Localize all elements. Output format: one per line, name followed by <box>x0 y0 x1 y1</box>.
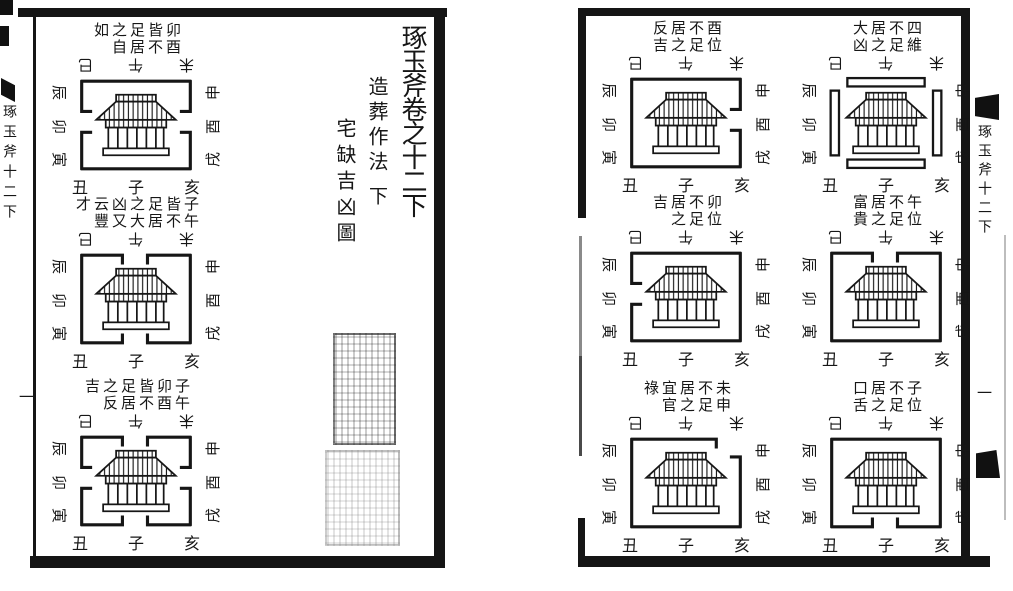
house-drawing <box>640 451 732 515</box>
branch-label-left: 辰 <box>799 257 820 272</box>
diagram-caption: 四維不足居之大凶 <box>851 20 921 56</box>
branch-label-top: 巳 <box>828 58 843 74</box>
branch-labels-top: 巳午未 <box>828 418 944 434</box>
branch-label-top: 巳 <box>828 418 843 434</box>
caption-column: 居之 <box>669 20 685 54</box>
branch-label-bottom: 亥 <box>934 532 950 556</box>
branch-label-bottom: 亥 <box>734 346 750 370</box>
branch-label-left: 寅 <box>799 510 820 525</box>
caption-column: 居之 <box>869 194 885 228</box>
left-folio-mark: 一 <box>19 386 34 407</box>
house-diagram: 卯酉皆不足居之自如 巳午未 辰卯寅 申酉戌 丑子亥 <box>52 22 220 196</box>
branch-label-top: 未 <box>729 232 744 248</box>
branch-labels-bottom: 丑子亥 <box>822 346 950 370</box>
scanned-book-spread: { "colors": { "ink": "#161616", "paper":… <box>0 0 1013 591</box>
branch-label-top: 午 <box>878 58 893 74</box>
right-folio-mark: 一 <box>977 382 992 403</box>
caption-column: 子午 <box>182 196 198 230</box>
branch-labels-bottom: 丑子亥 <box>622 346 750 370</box>
caption-column: 居之 <box>669 194 685 228</box>
branch-label-bottom: 丑 <box>72 174 88 198</box>
caption-column: 口舌 <box>851 380 867 414</box>
diagram-caption: 子午皆不足居之大凶又云豐才 <box>74 196 198 232</box>
branch-labels-left: 辰卯寅 <box>52 256 67 344</box>
caption-column: 皆不 <box>146 22 162 56</box>
caption-column: 不足 <box>887 194 903 228</box>
branch-labels-bottom: 丑子亥 <box>822 532 950 556</box>
compass-diagram: 巳午未 辰卯寅 申酉戌 丑子亥 <box>602 418 770 554</box>
house-diagram: 子午皆不足居之大凶又云豐才 巳午未 辰卯寅 申酉戌 丑子亥 <box>52 196 220 370</box>
branch-label-bottom: 子 <box>678 172 694 196</box>
caption-column: 卯位 <box>705 194 721 228</box>
branch-label-bottom: 亥 <box>184 348 200 372</box>
branch-labels-left: 辰卯寅 <box>602 440 617 528</box>
branch-label-right: 酉 <box>952 476 973 491</box>
branch-label-right: 申 <box>752 257 773 272</box>
branch-label-right: 申 <box>952 257 973 272</box>
branch-label-bottom: 丑 <box>822 532 838 556</box>
branch-label-top: 未 <box>729 58 744 74</box>
branch-label-right: 酉 <box>752 476 773 491</box>
diagram-caption: 卯酉皆不足居之自如 <box>92 22 180 58</box>
branch-label-bottom: 亥 <box>734 532 750 556</box>
compass-diagram: 巳午未 辰卯寅 申酉戌 丑子亥 <box>802 58 970 194</box>
branch-label-top: 午 <box>678 418 693 434</box>
caption-column: 凶又 <box>110 196 126 230</box>
branch-label-top: 未 <box>179 416 194 432</box>
branch-label-left: 寅 <box>49 152 70 167</box>
branch-label-bottom: 子 <box>878 346 894 370</box>
fishtail-mark <box>1 78 15 102</box>
caption-column: 之反 <box>101 378 117 412</box>
house-drawing <box>90 267 182 331</box>
branch-labels-bottom: 丑子亥 <box>72 530 200 554</box>
branch-label-bottom: 子 <box>678 346 694 370</box>
branch-label-top: 午 <box>678 58 693 74</box>
branch-label-left: 卯 <box>49 118 70 133</box>
branch-label-top: 午 <box>878 418 893 434</box>
house-diagram: 卯位不足居之吉 巳午未 辰卯寅 申酉戌 丑子亥 <box>602 194 770 368</box>
branch-labels-top: 巳午未 <box>78 60 194 76</box>
page-edge-line <box>1004 235 1006 520</box>
branch-labels-top: 巳午未 <box>628 232 744 248</box>
branch-labels-bottom: 丑子亥 <box>622 532 750 556</box>
branch-label-right: 戌 <box>202 508 223 523</box>
caption-column: 不足 <box>687 20 703 54</box>
caption-column: 反吉 <box>651 20 667 54</box>
branch-label-right: 戌 <box>202 152 223 167</box>
branch-labels-left: 辰卯寅 <box>602 254 617 342</box>
branch-label-right: 申 <box>752 83 773 98</box>
branch-label-bottom: 丑 <box>822 346 838 370</box>
branch-label-bottom: 亥 <box>734 172 750 196</box>
branch-label-right: 酉 <box>752 116 773 131</box>
branch-label-left: 寅 <box>799 324 820 339</box>
seal-stamp <box>333 333 396 445</box>
branch-label-right: 戌 <box>952 510 973 525</box>
branch-label-left: 卯 <box>49 292 70 307</box>
branch-label-right: 酉 <box>952 116 973 131</box>
caption-column: 居之 <box>678 380 694 414</box>
diagram-caption: 子午卯酉皆不足居之反吉 <box>83 378 189 414</box>
branch-label-bottom: 亥 <box>934 346 950 370</box>
branch-label-right: 戌 <box>952 324 973 339</box>
subtitle-suffix: 下 <box>366 186 387 210</box>
branch-labels-right: 申酉戌 <box>955 254 970 342</box>
branch-label-right: 戌 <box>752 150 773 165</box>
house-drawing <box>840 265 932 329</box>
caption-column: 不足 <box>696 380 712 414</box>
branch-label-right: 申 <box>202 259 223 274</box>
diagram-caption: 午位不足居之富貴 <box>851 194 921 230</box>
compass-diagram: 巳午未 辰卯寅 申酉戌 丑子亥 <box>602 232 770 368</box>
branch-labels-right: 申酉戌 <box>205 256 220 344</box>
branch-label-left: 寅 <box>599 324 620 339</box>
branch-label-top: 巳 <box>78 60 93 76</box>
branch-label-top: 巳 <box>78 234 93 250</box>
branch-label-left: 寅 <box>49 326 70 341</box>
caption-column: 宜官 <box>660 380 676 414</box>
caption-column: 吉 <box>83 378 99 395</box>
branch-label-left: 辰 <box>49 441 70 456</box>
subtitle-text: 造葬作法 <box>365 76 387 176</box>
right-spine-label: 琢玉斧十二下 <box>973 124 993 238</box>
branch-labels-left: 辰卯寅 <box>802 254 817 342</box>
caption-column: 子位 <box>905 380 921 414</box>
branch-label-right: 酉 <box>952 290 973 305</box>
compass-diagram: 巳午未 辰卯寅 申酉戌 丑子亥 <box>52 416 220 552</box>
edge-ink-blob <box>0 0 13 15</box>
branch-labels-top: 巳午未 <box>78 234 194 250</box>
house-diagram: 四維不足居之大凶 巳午未 辰卯寅 申酉戌 丑子亥 <box>802 20 970 194</box>
branch-labels-bottom: 丑子亥 <box>72 348 200 372</box>
branch-label-top: 未 <box>179 60 194 76</box>
house-drawing <box>90 93 182 157</box>
house-diagram: 酉位不足居之反吉 巳午未 辰卯寅 申酉戌 丑子亥 <box>602 20 770 194</box>
compass-diagram: 巳午未 辰卯寅 申酉戌 丑子亥 <box>802 232 970 368</box>
caption-column: 祿 <box>642 380 658 397</box>
branch-label-left: 卯 <box>799 476 820 491</box>
caption-column: 居之 <box>869 20 885 54</box>
branch-labels-right: 申酉戌 <box>755 254 770 342</box>
diagram-caption: 卯位不足居之吉 <box>651 194 721 230</box>
branch-label-bottom: 丑 <box>72 530 88 554</box>
house-drawing <box>640 91 732 155</box>
branch-labels-right: 申酉戌 <box>205 438 220 526</box>
branch-label-top: 未 <box>179 234 194 250</box>
section-title: 宅缺吉凶圖 <box>330 118 359 248</box>
branch-label-left: 寅 <box>599 150 620 165</box>
branch-label-left: 寅 <box>49 508 70 523</box>
branch-label-top: 午 <box>128 234 143 250</box>
branch-label-right: 申 <box>952 443 973 458</box>
branch-label-left: 辰 <box>599 83 620 98</box>
branch-label-top: 未 <box>729 418 744 434</box>
branch-label-top: 未 <box>929 418 944 434</box>
branch-label-bottom: 丑 <box>72 348 88 372</box>
caption-column: 居之 <box>869 380 885 414</box>
branch-labels-bottom: 丑子亥 <box>622 172 750 196</box>
caption-column: 酉位 <box>705 20 721 54</box>
diagram-caption: 子位不足居之口舌 <box>851 380 921 416</box>
branch-label-right: 酉 <box>202 118 223 133</box>
branch-label-left: 卯 <box>799 290 820 305</box>
fishtail-mark <box>975 94 999 120</box>
house-diagram: 子位不足居之口舌 巳午未 辰卯寅 申酉戌 丑子亥 <box>802 380 970 554</box>
branch-label-left: 寅 <box>799 150 820 165</box>
branch-label-right: 酉 <box>202 292 223 307</box>
compass-diagram: 巳午未 辰卯寅 申酉戌 丑子亥 <box>52 60 220 196</box>
branch-label-top: 未 <box>929 232 944 248</box>
branch-labels-top: 巳午未 <box>628 418 744 434</box>
caption-column: 才 <box>74 196 90 213</box>
house-diagram: 午位不足居之富貴 巳午未 辰卯寅 申酉戌 丑子亥 <box>802 194 970 368</box>
branch-labels-right: 申酉戌 <box>955 80 970 168</box>
branch-label-bottom: 子 <box>128 174 144 198</box>
caption-column: 之大 <box>128 196 144 230</box>
caption-column: 不足 <box>887 380 903 414</box>
branch-label-top: 巳 <box>628 232 643 248</box>
caption-column: 未申 <box>714 380 730 414</box>
branch-label-top: 巳 <box>628 58 643 74</box>
branch-label-top: 未 <box>929 58 944 74</box>
branch-label-left: 卯 <box>599 290 620 305</box>
branch-label-right: 酉 <box>202 474 223 489</box>
edge-ink-blob <box>0 26 9 46</box>
branch-labels-left: 辰卯寅 <box>802 440 817 528</box>
branch-label-top: 巳 <box>628 418 643 434</box>
branch-label-right: 申 <box>202 85 223 100</box>
branch-labels-top: 巳午未 <box>628 58 744 74</box>
subtitle: 造葬作法下 <box>362 76 391 210</box>
branch-labels-left: 辰卯寅 <box>802 80 817 168</box>
branch-labels-top: 巳午未 <box>78 416 194 432</box>
branch-label-right: 酉 <box>752 290 773 305</box>
caption-column: 皆不 <box>164 196 180 230</box>
branch-label-bottom: 亥 <box>184 530 200 554</box>
branch-labels-right: 申酉戌 <box>755 440 770 528</box>
branch-label-left: 卯 <box>599 116 620 131</box>
caption-column: 如 <box>92 22 108 39</box>
branch-labels-right: 申酉戌 <box>955 440 970 528</box>
left-spine-label: 琢玉斧十二下 <box>0 104 18 224</box>
branch-label-left: 辰 <box>49 85 70 100</box>
caption-column: 足居 <box>146 196 162 230</box>
branch-labels-bottom: 丑子亥 <box>72 174 200 198</box>
branch-label-bottom: 丑 <box>622 346 638 370</box>
caption-column: 云豐 <box>92 196 108 230</box>
branch-label-bottom: 亥 <box>184 174 200 198</box>
branch-label-left: 辰 <box>799 443 820 458</box>
caption-column: 大凶 <box>851 20 867 54</box>
branch-labels-right: 申酉戌 <box>205 82 220 170</box>
branch-labels-bottom: 丑子亥 <box>822 172 950 196</box>
branch-labels-left: 辰卯寅 <box>52 82 67 170</box>
left-page-diagram-column: 卯酉皆不足居之自如 巳午未 辰卯寅 申酉戌 丑子亥 子午皆不足居之大凶又云豐才 … <box>52 22 220 567</box>
left-page-border-top <box>18 8 447 17</box>
branch-label-right: 申 <box>202 441 223 456</box>
caption-column: 富貴 <box>851 194 867 228</box>
branch-label-bottom: 子 <box>678 532 694 556</box>
branch-label-top: 巳 <box>78 416 93 432</box>
caption-column: 午位 <box>905 194 921 228</box>
branch-label-bottom: 丑 <box>622 532 638 556</box>
compass-diagram: 巳午未 辰卯寅 申酉戌 丑子亥 <box>52 234 220 370</box>
caption-column: 不足 <box>887 20 903 54</box>
branch-label-bottom: 亥 <box>934 172 950 196</box>
branch-label-right: 戌 <box>752 510 773 525</box>
branch-label-left: 辰 <box>799 83 820 98</box>
branch-labels-right: 申酉戌 <box>755 80 770 168</box>
caption-column: 四維 <box>905 20 921 54</box>
caption-column: 卯酉 <box>164 22 180 56</box>
left-page-border-left <box>33 10 36 566</box>
house-diagram: 未申不足居之宜官祿 巳午未 辰卯寅 申酉戌 丑子亥 <box>602 380 770 554</box>
branch-label-top: 午 <box>128 60 143 76</box>
branch-label-right: 申 <box>752 443 773 458</box>
branch-labels-top: 巳午未 <box>828 58 944 74</box>
caption-column: 皆不 <box>137 378 153 412</box>
seal-stamp <box>325 450 400 546</box>
house-drawing <box>640 265 732 329</box>
caption-column: 足居 <box>119 378 135 412</box>
caption-column: 子午 <box>173 378 189 412</box>
branch-label-bottom: 子 <box>128 530 144 554</box>
house-drawing <box>840 91 932 155</box>
branch-label-left: 辰 <box>599 257 620 272</box>
diagram-caption: 未申不足居之宜官祿 <box>642 380 730 416</box>
fishtail-mark <box>976 450 1000 478</box>
branch-labels-top: 巳午未 <box>828 232 944 248</box>
branch-label-top: 午 <box>128 416 143 432</box>
compass-diagram: 巳午未 辰卯寅 申酉戌 丑子亥 <box>602 58 770 194</box>
house-diagram: 子午卯酉皆不足居之反吉 巳午未 辰卯寅 申酉戌 丑子亥 <box>52 378 220 552</box>
branch-label-top: 巳 <box>828 232 843 248</box>
branch-label-left: 辰 <box>599 443 620 458</box>
branch-label-top: 午 <box>878 232 893 248</box>
branch-labels-left: 辰卯寅 <box>52 438 67 526</box>
branch-label-right: 戌 <box>202 326 223 341</box>
branch-label-left: 辰 <box>49 259 70 274</box>
branch-label-right: 戌 <box>752 324 773 339</box>
compass-diagram: 巳午未 辰卯寅 申酉戌 丑子亥 <box>802 418 970 554</box>
branch-label-top: 午 <box>678 232 693 248</box>
branch-label-left: 寅 <box>599 510 620 525</box>
branch-label-bottom: 丑 <box>622 172 638 196</box>
house-drawing <box>840 451 932 515</box>
branch-label-bottom: 子 <box>128 348 144 372</box>
caption-column: 不足 <box>687 194 703 228</box>
branch-label-left: 卯 <box>599 476 620 491</box>
branch-label-bottom: 丑 <box>822 172 838 196</box>
caption-column: 之自 <box>110 22 126 56</box>
caption-column: 卯酉 <box>155 378 171 412</box>
branch-label-right: 戌 <box>952 150 973 165</box>
branch-label-left: 卯 <box>799 116 820 131</box>
left-page-border-right <box>434 9 445 566</box>
branch-label-bottom: 子 <box>878 532 894 556</box>
caption-column: 吉 <box>651 194 667 211</box>
right-page-diagram-grid: 酉位不足居之反吉 巳午未 辰卯寅 申酉戌 丑子亥 四維不足居之大凶 巳午未 辰卯… <box>578 8 970 568</box>
branch-label-left: 卯 <box>49 474 70 489</box>
branch-label-right: 申 <box>952 83 973 98</box>
branch-labels-left: 辰卯寅 <box>602 80 617 168</box>
volume-title: 琢玉斧卷之十二下 <box>394 24 431 216</box>
house-drawing <box>90 449 182 513</box>
caption-column: 足居 <box>128 22 144 56</box>
branch-label-bottom: 子 <box>878 172 894 196</box>
diagram-caption: 酉位不足居之反吉 <box>651 20 721 56</box>
